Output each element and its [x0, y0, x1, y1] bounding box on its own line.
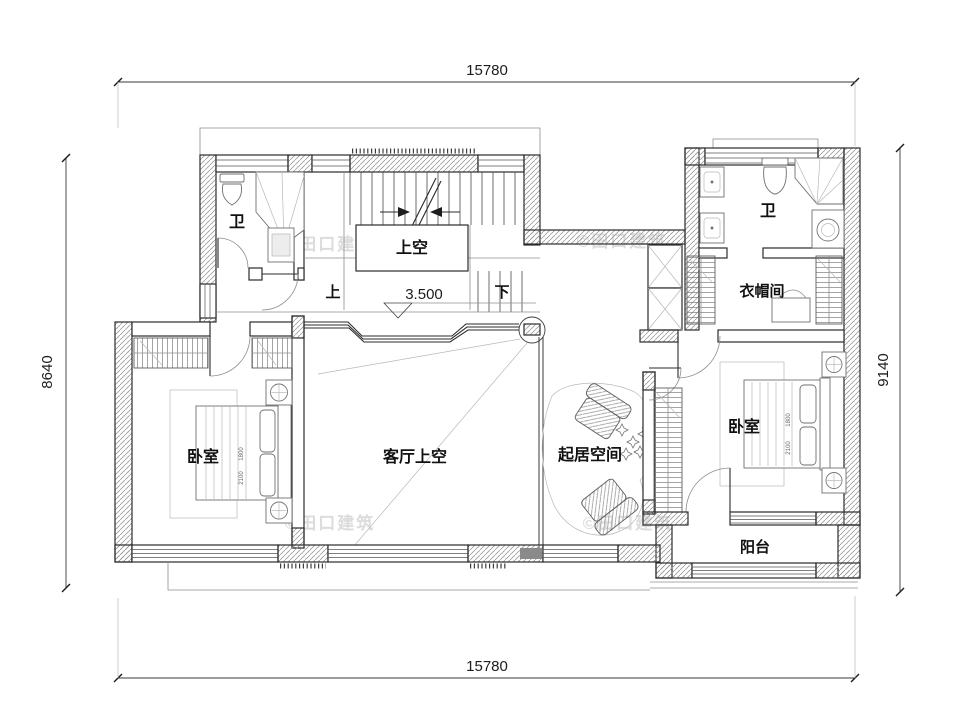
- dim-bottom-label: 15780: [466, 658, 508, 675]
- wardrobe-fixture: [654, 388, 682, 512]
- stair-up-label: 上: [325, 284, 340, 301]
- nightstand-fixture: [822, 468, 846, 493]
- elevation-label: 3.500: [405, 286, 443, 303]
- bed-width-dim: 1800: [239, 447, 245, 461]
- nightstand-fixture: [266, 380, 292, 405]
- nightstand-fixture: [822, 352, 846, 377]
- stair-void-label: 上空: [396, 238, 428, 257]
- dim-right-label: 9140: [875, 353, 892, 386]
- bed-length-dim: 2100: [239, 471, 245, 485]
- washing-machine-fixture: [812, 210, 844, 248]
- vanity-fixture: [268, 228, 294, 262]
- room-label-living: 起居空间: [557, 445, 622, 464]
- room-label-bath-left: 卫: [229, 214, 245, 231]
- stair-down-label: 下: [494, 284, 509, 301]
- sink-fixture: [700, 167, 724, 197]
- room-label-balcony: 阳台: [740, 538, 770, 556]
- dim-top-label: 15780: [466, 62, 508, 79]
- dim-left-label: 8640: [39, 355, 56, 388]
- wardrobe-fixture: [816, 256, 842, 324]
- nightstand-fixture: [266, 498, 292, 523]
- room-label-bedroom-right: 卧室: [728, 417, 760, 436]
- room-label-bath-right: 卫: [760, 203, 776, 220]
- bed-width-dim: 1800: [786, 413, 792, 427]
- wardrobe-fixture: [687, 256, 715, 324]
- wardrobe-fixture: [134, 338, 208, 368]
- floor-plan-drawing: ©田口建筑 ©田口建筑 ©田口建筑 ©田口建筑 15780 15780 8640…: [0, 0, 961, 722]
- room-label-closet: 衣帽间: [739, 282, 784, 300]
- room-label-bedroom-left: 卧室: [187, 447, 219, 466]
- room-label-living-void: 客厅上空: [383, 447, 447, 466]
- bed-length-dim: 2100: [786, 441, 792, 455]
- stair-void-box: 上空: [356, 225, 468, 271]
- wardrobe-fixture: [252, 338, 292, 368]
- sink-fixture: [700, 213, 724, 243]
- floor-plan-sheet: ©田口建筑 ©田口建筑 ©田口建筑 ©田口建筑 15780 15780 8640…: [0, 0, 961, 722]
